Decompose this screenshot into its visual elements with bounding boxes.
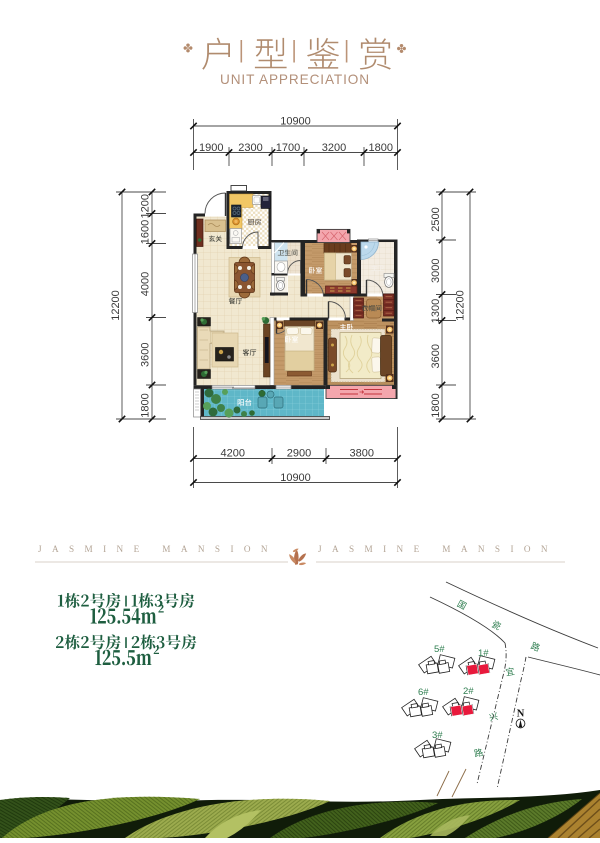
svg-text:12200: 12200 — [455, 290, 467, 321]
svg-text:10900: 10900 — [280, 116, 311, 128]
svg-text:6#: 6# — [418, 687, 429, 698]
svg-text:3800: 3800 — [350, 447, 374, 459]
svg-text:10900: 10900 — [280, 472, 311, 484]
svg-text:4000: 4000 — [140, 272, 152, 296]
svg-text:3600: 3600 — [430, 344, 442, 368]
svg-text:4200: 4200 — [221, 447, 245, 459]
svg-text:N: N — [517, 709, 525, 720]
svg-text:3600: 3600 — [140, 343, 152, 367]
svg-text:3000: 3000 — [430, 259, 442, 283]
svg-text:2900: 2900 — [287, 447, 311, 459]
svg-text:1200: 1200 — [140, 194, 152, 218]
svg-text:UNIT APPRECIATION: UNIT APPRECIATION — [220, 72, 370, 87]
svg-text:3200: 3200 — [322, 142, 346, 154]
svg-text:1300: 1300 — [430, 299, 442, 323]
svg-text:1700: 1700 — [276, 142, 300, 154]
svg-text:2300: 2300 — [238, 142, 262, 154]
svg-text:1900: 1900 — [199, 142, 223, 154]
svg-text:3#: 3# — [432, 730, 443, 741]
svg-text:1800: 1800 — [140, 393, 152, 417]
svg-text:JASMINE MANSION: JASMINE MANSION — [38, 544, 278, 554]
svg-text:2#: 2# — [463, 686, 474, 697]
svg-text:JASMINE MANSION: JASMINE MANSION — [318, 544, 558, 554]
svg-text:1#: 1# — [478, 648, 489, 659]
svg-text:1600: 1600 — [140, 220, 152, 244]
svg-text:12200: 12200 — [110, 290, 122, 321]
svg-text:1800: 1800 — [430, 393, 442, 417]
svg-text:2500: 2500 — [430, 207, 442, 231]
svg-text:5#: 5# — [434, 644, 445, 655]
svg-text:1800: 1800 — [369, 142, 393, 154]
